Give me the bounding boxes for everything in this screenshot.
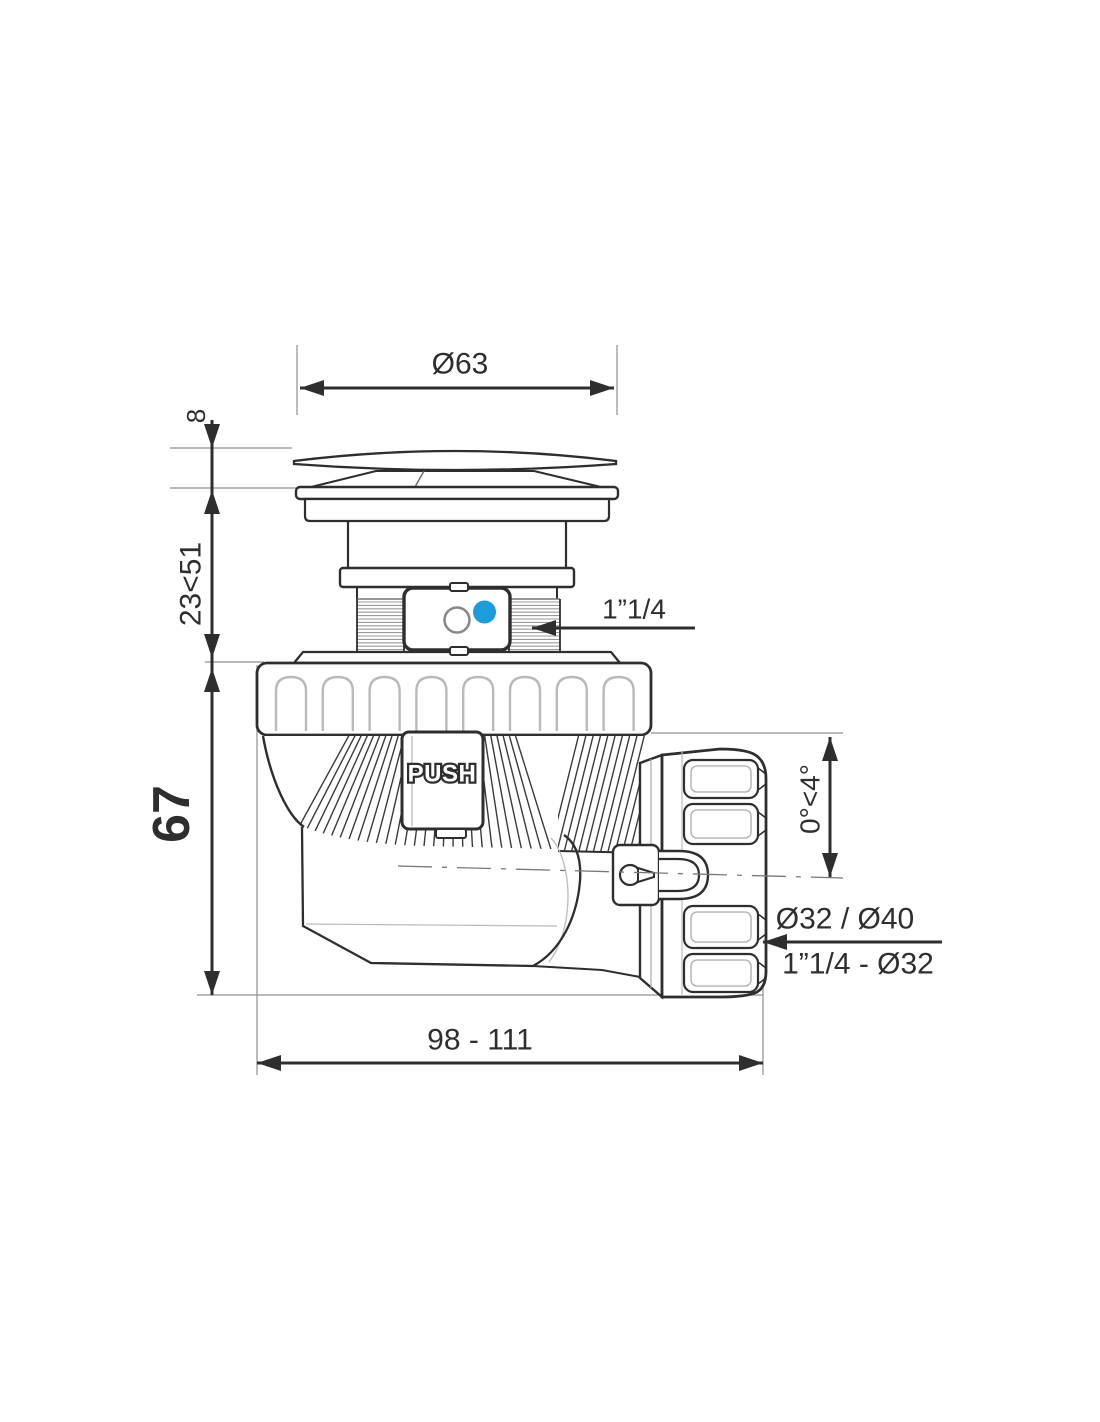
dim-outlet-sizes-top-label: Ø32 / Ø40: [776, 903, 914, 936]
dim-outlet-sizes-bottom-label: 1”1/4 - Ø32: [782, 948, 934, 981]
cap-cylinder: [348, 521, 566, 568]
blue-dot-icon: [473, 601, 496, 624]
dim-body-height-label: 67: [143, 785, 201, 843]
locknut-ring: [257, 663, 651, 735]
cap-under-cone: [311, 471, 601, 487]
dim-inlet-thread-label: 1”1/4: [602, 594, 666, 625]
dim-cap-thickness-label: 8: [181, 409, 211, 423]
drawing-page: PUSH: [0, 0, 1100, 1422]
push-label: PUSH: [408, 761, 477, 788]
indicator-label-plate: [404, 583, 510, 655]
dim-outlet-angle-label: 0°<4°: [795, 764, 826, 834]
dim-total-length-label: 98 - 111: [427, 1024, 533, 1057]
push-button: PUSH: [402, 732, 483, 838]
cap-dome: [294, 451, 616, 470]
cap-flange-lip: [296, 487, 618, 499]
dim-adjustable-height-label: 23<51: [175, 542, 208, 626]
cap-assembly: [294, 451, 618, 599]
cap-flange-face: [305, 499, 609, 521]
locknut: [257, 663, 651, 735]
technical-drawing: PUSH: [0, 0, 1100, 1422]
dim-cap-diameter-label: Ø63: [432, 348, 489, 381]
white-dot-icon: [445, 608, 470, 633]
